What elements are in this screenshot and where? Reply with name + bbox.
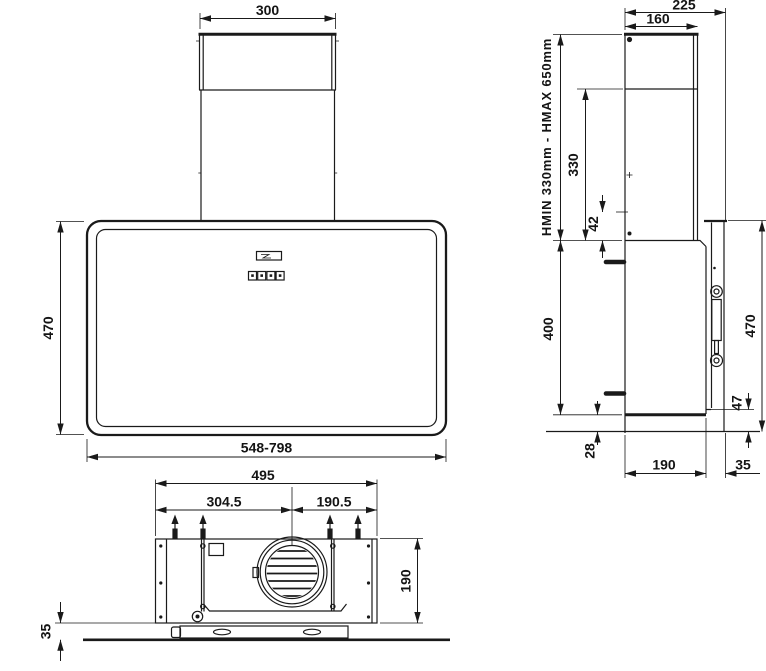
hood-dimension-drawing: 300 470 548-798 [0,0,766,671]
side-view: 225 160 HMIN 330mm - HMAX 650mm 330 42 4… [539,0,766,478]
dim-side-glass-offset: 35 [726,457,761,474]
bottom-body [156,539,378,623]
dim-front-body-width: 548-798 [87,439,446,462]
dim-bottom-left-span-label: 304.5 [206,494,241,510]
dim-bottom-left-span: 304.5 [156,494,293,511]
dim-front-chimney-width-label: 300 [256,2,280,18]
dim-bottom-body-depth: 190 [380,539,423,624]
dim-front-body-width-label: 548-798 [241,440,293,456]
dim-side-height-range-label: HMIN 330mm - HMAX 650mm [539,38,554,236]
dim-side-body-height-label: 400 [540,317,556,341]
bottom-view: 495 304.5 190.5 190 35 [38,467,451,661]
screw-icon [627,37,632,42]
stud-icon [354,515,361,540]
stud-icon [326,515,333,540]
control-panel [249,252,285,281]
dim-side-chimney-lower-label: 330 [565,153,581,177]
front-chimney [196,34,339,222]
technical-drawing-canvas: 300 470 548-798 [0,0,766,671]
dim-side-chimney-depth-label: 160 [646,11,670,27]
dim-side-front-notch: 47 [706,393,754,448]
display-window [257,252,282,261]
dim-bottom-right-span-label: 190.5 [316,494,351,510]
dim-front-body-height: 470 [40,222,84,435]
dim-side-glass-height-label: 470 [742,314,758,338]
dim-side-outlet-offset-label: 42 [585,216,601,232]
dim-side-outlet-offset: 42 [585,195,603,258]
dim-side-front-notch-label: 47 [729,395,745,411]
dim-front-body-height-label: 470 [40,316,56,340]
center-mark-icon [627,172,633,178]
wall-bracket [55,623,450,640]
lamp-tray-outline [204,604,347,611]
dim-side-bottom-offset: 28 [582,401,598,459]
dim-bottom-body-depth-label: 190 [398,569,414,593]
side-fasteners [606,37,633,394]
stud-icon [171,515,178,540]
dim-bottom-right-span: 190.5 [292,494,377,511]
control-buttons [249,272,285,281]
front-body [87,221,446,435]
fan-outlet [253,537,327,607]
dim-side-total-depth: 225 [625,0,726,30]
dim-side-total-depth-label: 225 [672,0,696,13]
stud-icon [199,515,206,540]
hinge-strut [711,267,723,367]
dim-side-body-height: 400 [540,241,622,415]
screw-icon [628,232,632,236]
dim-bottom-glass-offset: 35 [38,602,61,661]
dim-side-bottom-offset-label: 28 [582,443,598,459]
dim-side-body-depth: 190 [625,418,706,478]
dim-front-chimney-width: 300 [200,2,336,29]
front-view: 300 470 548-798 [40,2,446,462]
mounting-studs [171,515,361,540]
dim-side-height-range: HMIN 330mm - HMAX 650mm [539,35,622,241]
dim-side-glass-offset-label: 35 [735,457,751,473]
display-glyph-icon [261,255,271,259]
dim-bottom-glass-offset-label: 35 [38,624,54,640]
junction-box [209,544,224,556]
dim-bottom-mount-width-label: 495 [251,467,275,483]
dim-side-body-depth-label: 190 [652,457,676,473]
